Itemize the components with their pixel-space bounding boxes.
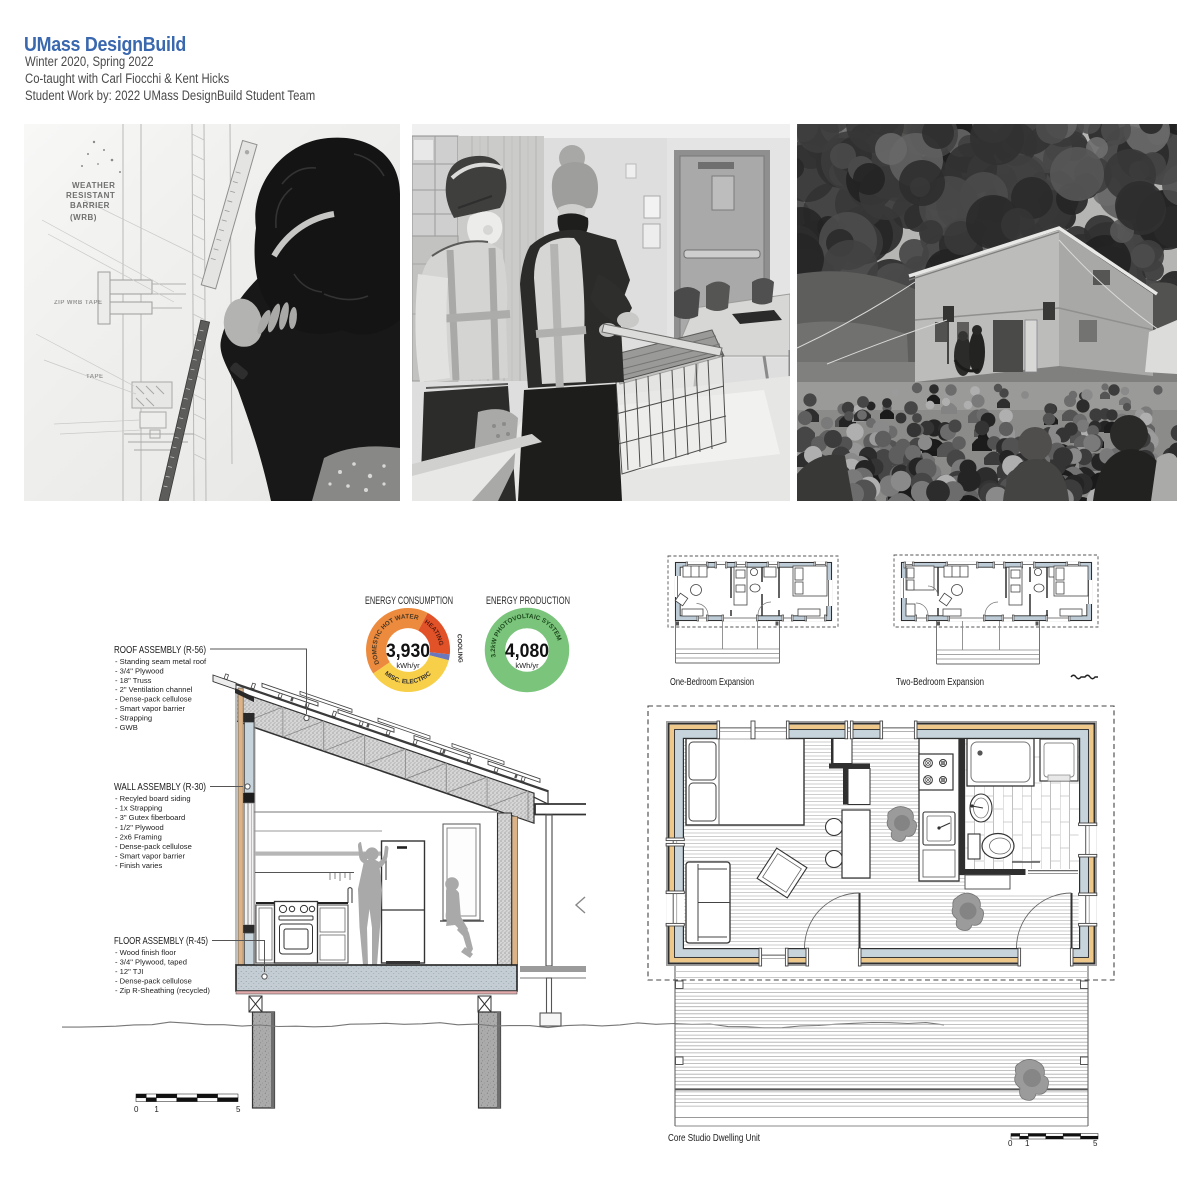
svg-text:Core Studio Dwelling Unit: Core Studio Dwelling Unit (668, 1133, 760, 1144)
svg-text:1: 1 (1025, 1139, 1030, 1148)
svg-text:0: 0 (1008, 1139, 1013, 1148)
svg-text:5: 5 (1093, 1139, 1098, 1148)
svg-text:One-Bedroom Expansion: One-Bedroom Expansion (670, 677, 754, 688)
svg-text:Two-Bedroom Expansion: Two-Bedroom Expansion (896, 677, 984, 688)
